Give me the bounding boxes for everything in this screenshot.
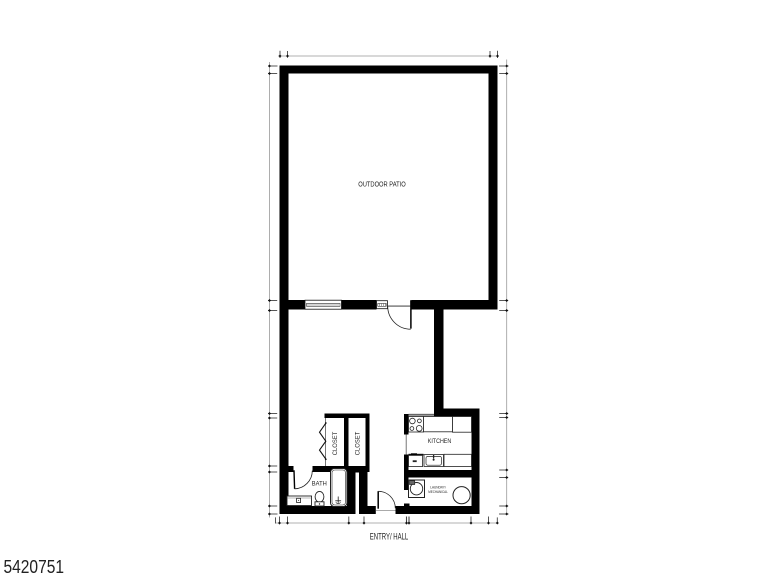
svg-text:LAUNDRY/: LAUNDRY/ — [430, 486, 446, 490]
svg-text:KITCHEN: KITCHEN — [428, 439, 452, 445]
svg-text:ENTRY/ HALL: ENTRY/ HALL — [370, 532, 409, 542]
svg-text:OUTDOOR PATIO: OUTDOOR PATIO — [358, 180, 406, 189]
svg-text:MECHANICAL: MECHANICAL — [428, 490, 448, 494]
svg-text:5420751: 5420751 — [4, 556, 65, 577]
svg-text:CLOSET: CLOSET — [332, 432, 339, 456]
svg-text:BATH: BATH — [312, 481, 327, 487]
svg-text:CLOSET: CLOSET — [355, 432, 362, 456]
